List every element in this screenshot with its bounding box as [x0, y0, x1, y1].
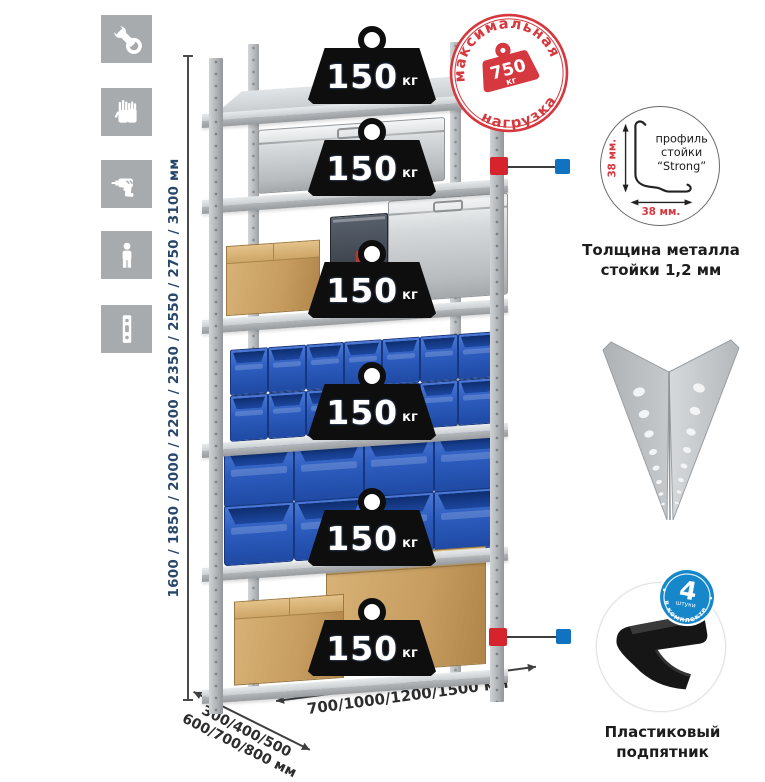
profile-label-1: профиль [655, 132, 707, 145]
storage-bin [268, 345, 306, 394]
shelf-load-badge: 150кг [308, 598, 436, 676]
load-unit: кг [402, 166, 418, 181]
callout-marker-red-top [490, 157, 508, 175]
drill-tile [101, 160, 152, 208]
profile-dim-horizontal: 38 мм. [642, 206, 681, 218]
height-dimension-line: 1600 / 1850 / 2000 / 2200 / 2350 / 2550 … [187, 55, 189, 701]
rack-post-front-right [490, 50, 504, 702]
page: { "icons": [ {"name": "wrench-icon"}, {"… [0, 0, 765, 765]
load-unit: кг [402, 74, 418, 89]
weight-ring-icon [358, 362, 386, 390]
weight-ring-icon [358, 26, 386, 54]
profile-dim-vertical: 38 мм. [607, 139, 619, 178]
wrench-icon [111, 23, 143, 55]
profile-caption: Толщина металла стойки 1,2 мм [572, 240, 750, 281]
rack-post-front-left [209, 58, 223, 714]
weight-ring-icon [358, 488, 386, 516]
shelf-load-badge: 150кг [308, 240, 436, 318]
load-value: 150 [326, 393, 398, 432]
load-value: 150 [326, 271, 398, 310]
weight-ring-icon [358, 240, 386, 268]
callout-marker-red-bottom [489, 628, 507, 646]
load-value: 150 [326, 629, 398, 668]
shelf-load-badge: 150кг [308, 488, 436, 566]
callout-marker-blue-top [555, 159, 570, 174]
load-value: 150 [326, 149, 398, 188]
shelf-load-badge: 150кг [308, 118, 436, 196]
height-dimension-label: 1600 / 1850 / 2000 / 2200 / 2350 / 2550 … [166, 159, 182, 598]
foot-caption: Пластиковый подпятник [580, 722, 745, 763]
drill-icon [111, 168, 143, 200]
post-profile-callout: 38 мм. 38 мм. профиль стойки “Strong” [600, 106, 720, 226]
storage-bin [230, 347, 268, 396]
load-value: 150 [326, 57, 398, 96]
assembly-wrench-tile [101, 15, 152, 63]
gloves-icon [111, 96, 143, 128]
shelf-load-badge: 150кг [308, 26, 436, 104]
load-unit: кг [402, 410, 418, 425]
callout-marker-blue-bottom [556, 629, 571, 644]
kit-count-badge: 4 штуки в комплекте [651, 561, 723, 633]
load-unit: кг [402, 646, 418, 661]
weight-ring-icon [358, 598, 386, 626]
cardboard-box [226, 240, 320, 317]
callout-line-top [500, 166, 558, 168]
gloves-tile [101, 88, 152, 136]
rack-post-icon [111, 312, 143, 346]
person-icon [112, 239, 142, 271]
load-value: 150 [326, 519, 398, 558]
callout-line-bottom [498, 636, 558, 638]
load-unit: кг [402, 288, 418, 303]
person-tile [101, 231, 152, 279]
rack-post-tile [101, 305, 152, 353]
load-unit: кг [402, 536, 418, 551]
shelf-load-badge: 150кг [308, 362, 436, 440]
profile-label-2: стойки [661, 146, 702, 159]
profile-label-3: “Strong” [657, 160, 706, 173]
angle-post-image [597, 328, 745, 533]
weight-ring-icon [358, 118, 386, 146]
